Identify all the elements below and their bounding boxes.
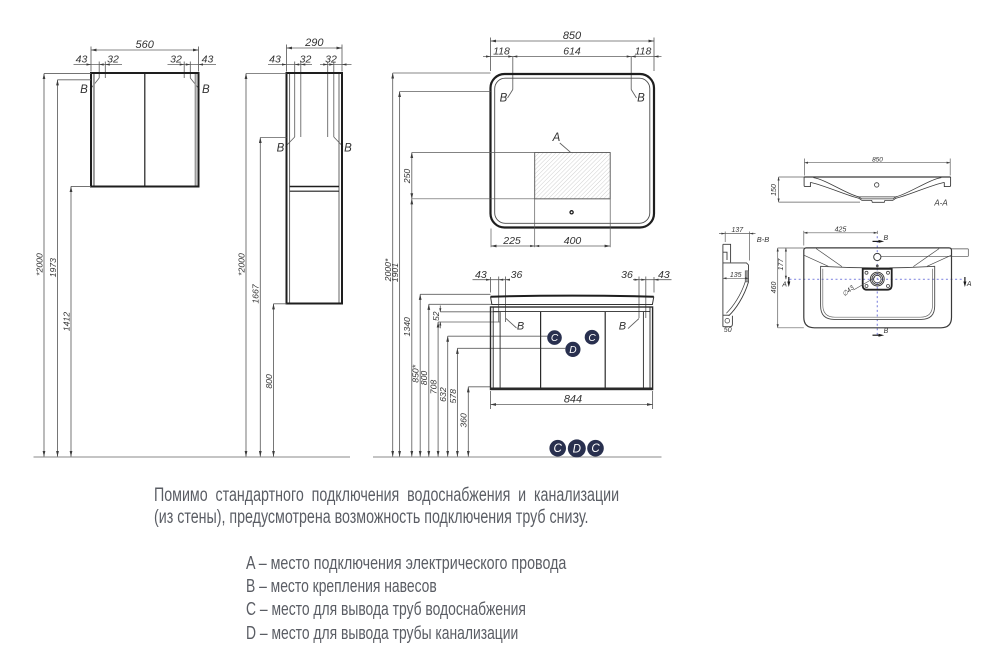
svg-text:560: 560 [136, 39, 155, 51]
svg-text:118: 118 [493, 46, 510, 58]
svg-text:36: 36 [621, 269, 633, 281]
svg-text:32: 32 [300, 54, 312, 66]
svg-text:150: 150 [771, 184, 778, 196]
svg-text:632: 632 [438, 387, 448, 402]
svg-text:В: В [884, 328, 889, 335]
svg-text:B: B [619, 321, 626, 333]
svg-text:850: 850 [563, 30, 582, 42]
svg-text:250: 250 [402, 169, 412, 185]
svg-text:32: 32 [325, 54, 337, 66]
svg-text:B: B [517, 321, 524, 333]
svg-text:1412: 1412 [61, 312, 71, 331]
svg-text:B: B [500, 93, 508, 105]
svg-text:708: 708 [429, 380, 439, 395]
svg-text:50: 50 [724, 327, 732, 334]
svg-text:B: B [344, 143, 352, 155]
svg-text:B: B [80, 84, 88, 96]
svg-text:B: B [637, 93, 645, 105]
svg-text:800: 800 [264, 374, 274, 389]
svg-text:360: 360 [459, 413, 469, 428]
svg-text:32: 32 [107, 54, 119, 66]
svg-text:D: D [569, 345, 577, 356]
svg-text:D: D [573, 443, 581, 456]
svg-text:118: 118 [635, 46, 652, 58]
svg-text:C: C [551, 333, 559, 344]
svg-text:290: 290 [304, 37, 324, 49]
svg-text:*2000: *2000 [236, 253, 246, 276]
svg-text:∅43: ∅43 [841, 284, 856, 298]
svg-text:*2000: *2000 [34, 253, 44, 276]
svg-text:177: 177 [778, 258, 785, 271]
svg-text:225: 225 [502, 235, 521, 247]
svg-text:A: A [552, 132, 561, 144]
svg-text:1901: 1901 [390, 263, 400, 282]
svg-text:B: B [202, 84, 210, 96]
svg-text:A-A: A-A [933, 199, 947, 208]
svg-text:43: 43 [269, 54, 281, 66]
svg-text:C: C [588, 333, 596, 344]
svg-text:844: 844 [564, 394, 582, 406]
svg-text:В: В [883, 235, 888, 242]
svg-text:614: 614 [563, 46, 581, 58]
svg-text:43: 43 [658, 269, 670, 281]
svg-text:B: B [277, 143, 285, 155]
svg-text:400: 400 [564, 235, 582, 247]
svg-text:137: 137 [731, 227, 744, 234]
svg-text:А: А [781, 281, 787, 288]
svg-text:А: А [966, 281, 972, 288]
svg-text:43: 43 [475, 269, 487, 281]
svg-text:850: 850 [872, 156, 883, 163]
svg-text:135: 135 [730, 272, 742, 279]
svg-text:52: 52 [431, 311, 441, 321]
svg-text:B-B: B-B [757, 235, 770, 244]
svg-text:43: 43 [202, 54, 214, 66]
svg-text:425: 425 [835, 226, 847, 233]
svg-text:C: C [591, 442, 600, 455]
svg-text:460: 460 [771, 282, 778, 294]
svg-text:1340: 1340 [402, 317, 412, 336]
svg-text:36: 36 [511, 269, 523, 281]
svg-text:1973: 1973 [48, 258, 58, 277]
svg-text:C: C [554, 442, 563, 455]
svg-text:1667: 1667 [251, 283, 261, 303]
svg-text:578: 578 [448, 389, 458, 404]
svg-text:43: 43 [76, 54, 88, 66]
svg-text:32: 32 [170, 54, 182, 66]
